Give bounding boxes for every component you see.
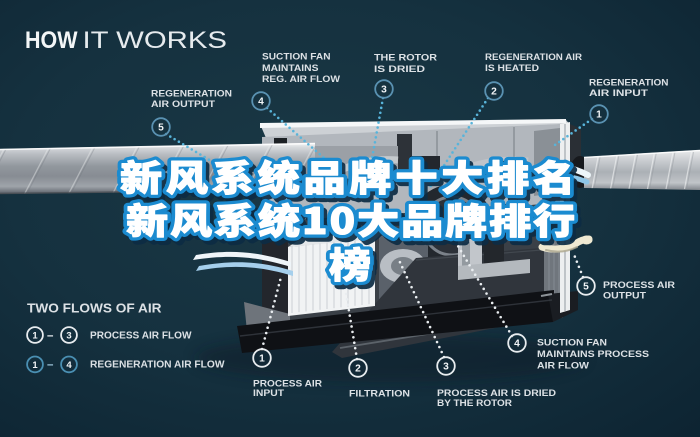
svg-text:5: 5 (583, 282, 589, 293)
svg-text:REGENERATION: REGENERATION (151, 89, 232, 100)
svg-text:FILTRATION: FILTRATION (349, 389, 410, 400)
svg-text:2: 2 (491, 87, 497, 98)
svg-text:4: 4 (258, 97, 264, 108)
svg-text:THE ROTOR: THE ROTOR (374, 53, 437, 64)
svg-text:1: 1 (596, 110, 602, 121)
svg-text:3: 3 (443, 362, 449, 373)
svg-text:SUCTION FAN: SUCTION FAN (262, 52, 331, 63)
svg-text:3: 3 (66, 330, 71, 341)
svg-text:1: 1 (32, 330, 38, 341)
svg-text:REG. AIR FLOW: REG. AIR FLOW (262, 74, 341, 85)
svg-text:BY THE ROTOR: BY THE ROTOR (437, 398, 512, 409)
svg-text:5: 5 (158, 123, 164, 134)
svg-text:TWO FLOWS OF AIR: TWO FLOWS OF AIR (27, 301, 162, 315)
svg-text:PROCESS AIR FLOW: PROCESS AIR FLOW (90, 330, 192, 341)
svg-text:–: – (47, 330, 54, 342)
svg-text:HOW: HOW (25, 27, 78, 54)
svg-text:MAINTAINS: MAINTAINS (262, 63, 319, 74)
svg-text:1: 1 (32, 360, 38, 371)
svg-text:REGENERATION AIR: REGENERATION AIR (485, 52, 582, 63)
svg-text:1: 1 (259, 354, 265, 365)
svg-text:4: 4 (66, 360, 72, 371)
svg-text:AIR FLOW: AIR FLOW (537, 361, 590, 372)
svg-text:INPUT: INPUT (253, 388, 284, 399)
svg-text:4: 4 (514, 339, 520, 350)
svg-text:IT WORKS: IT WORKS (83, 27, 228, 54)
svg-text:AIR OUTPUT: AIR OUTPUT (151, 99, 215, 110)
svg-text:2: 2 (355, 364, 361, 375)
svg-text:MAINTAINS PROCESS: MAINTAINS PROCESS (537, 349, 650, 360)
svg-text:IS DRIED: IS DRIED (374, 64, 425, 75)
svg-text:REGENERATION: REGENERATION (589, 78, 669, 89)
svg-text:3: 3 (381, 85, 387, 96)
svg-text:PROCESS AIR: PROCESS AIR (603, 280, 675, 291)
svg-text:OUTPUT: OUTPUT (603, 291, 646, 302)
svg-text:–: – (47, 359, 54, 371)
svg-text:IS HEATED: IS HEATED (485, 63, 539, 74)
svg-text:SUCTION FAN: SUCTION FAN (537, 338, 607, 349)
svg-text:AIR INPUT: AIR INPUT (589, 88, 648, 99)
svg-text:REGENERATION AIR FLOW: REGENERATION AIR FLOW (90, 360, 225, 371)
